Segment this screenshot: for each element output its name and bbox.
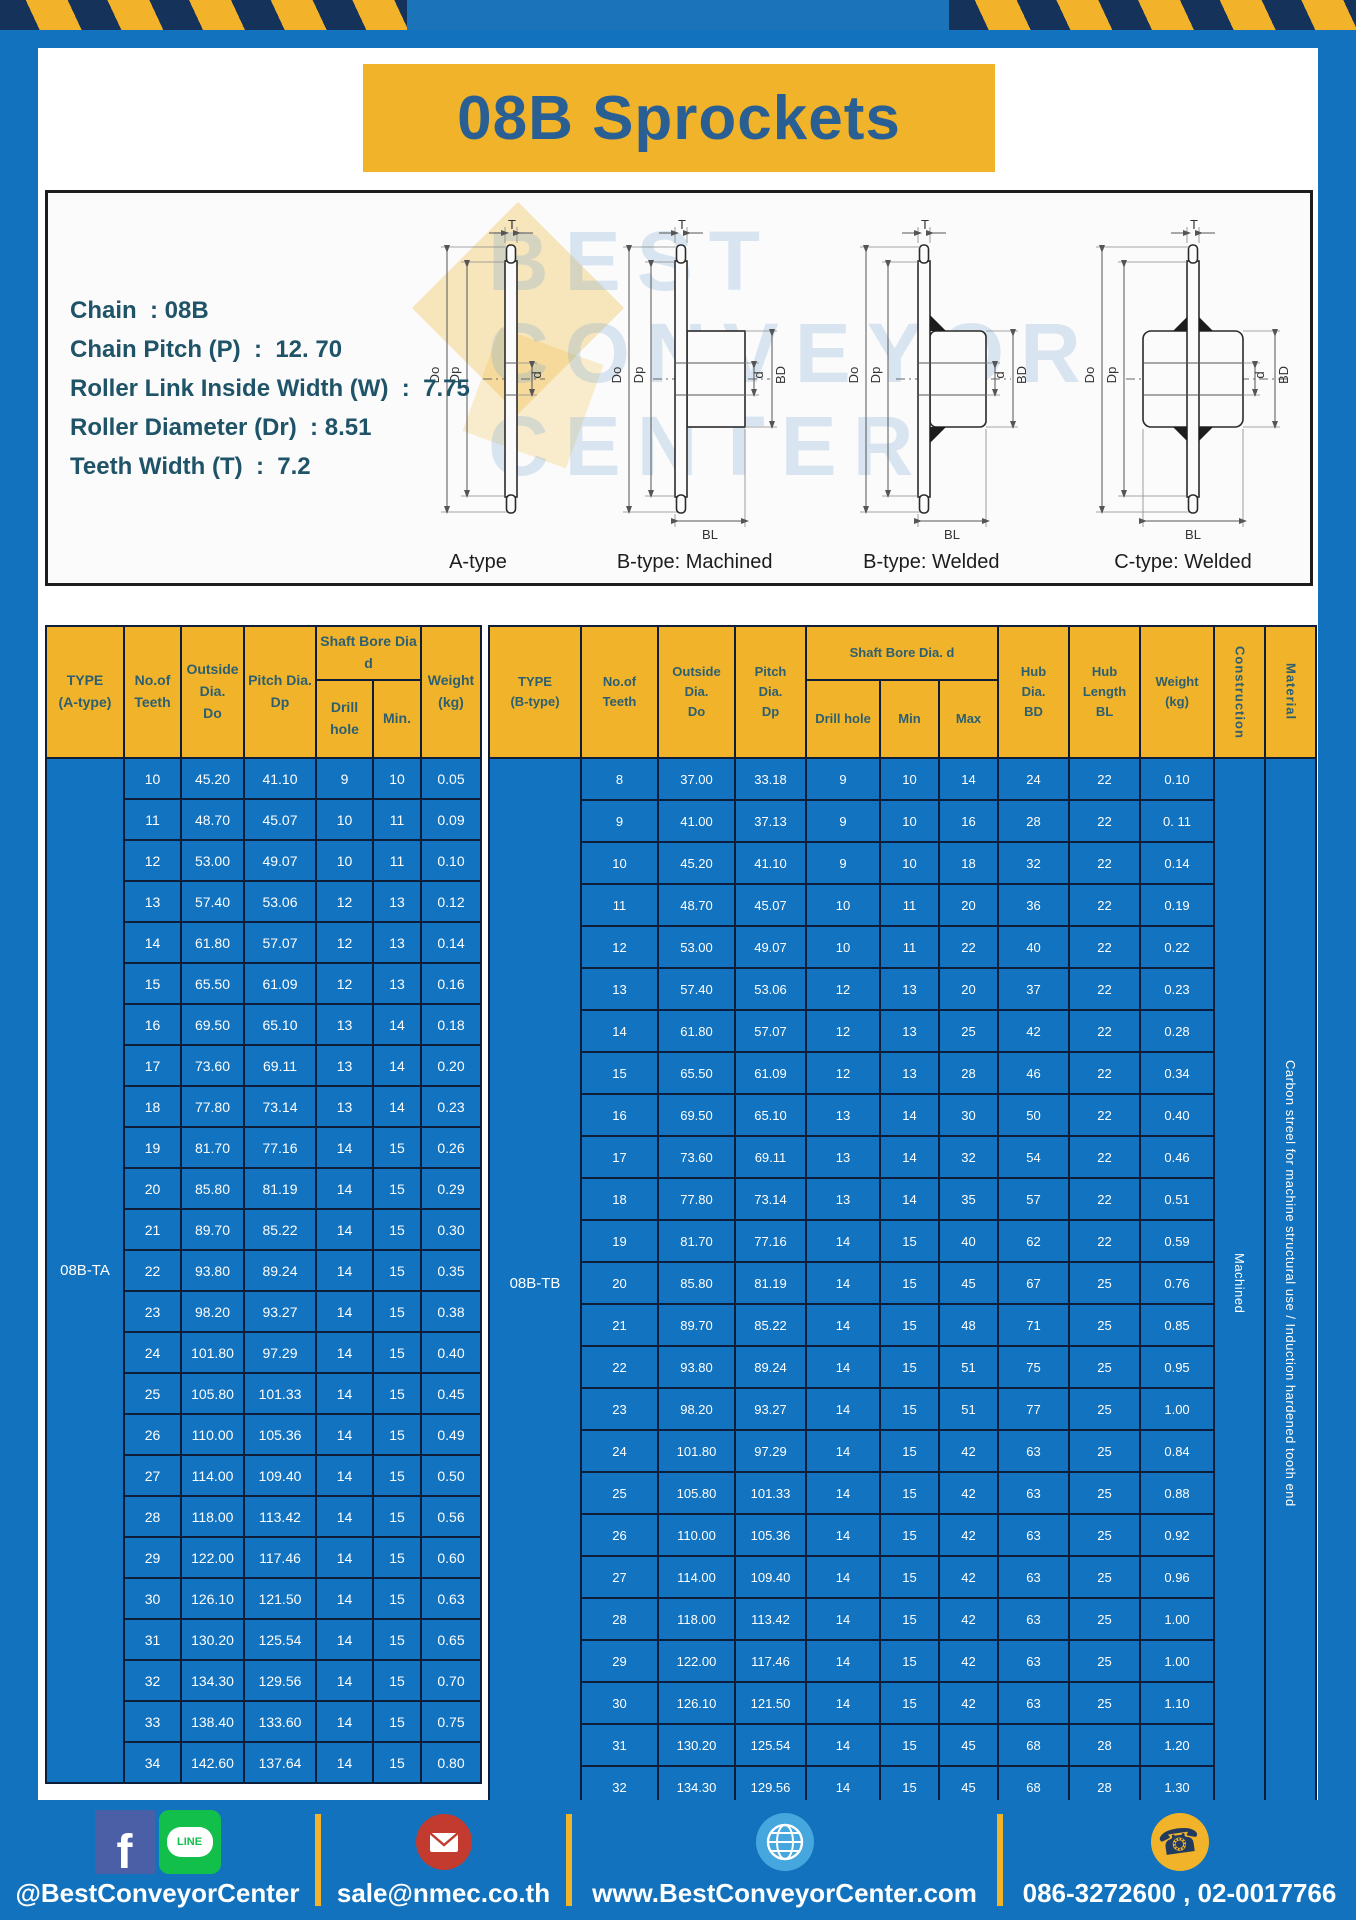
table-cell: 22 bbox=[1069, 1094, 1140, 1136]
table-cell: 14 bbox=[806, 1430, 880, 1472]
table-cell: 45 bbox=[939, 1262, 998, 1304]
dim-bl: BL bbox=[944, 527, 960, 542]
table-cell: 22 bbox=[1069, 842, 1140, 884]
dim-d: d bbox=[529, 371, 544, 378]
table-cell: 57.07 bbox=[735, 1010, 806, 1052]
table-cell: 53.06 bbox=[244, 881, 316, 922]
table-cell: 25 bbox=[1069, 1682, 1140, 1724]
table-cell: 34 bbox=[124, 1742, 181, 1783]
table-cell: 0.92 bbox=[1140, 1514, 1214, 1556]
dim-bl: BL bbox=[702, 527, 718, 542]
table-row: 24101.8097.2914154263250.84 bbox=[489, 1430, 1316, 1472]
table-row: 1253.0049.0710112240220.22 bbox=[489, 926, 1316, 968]
table-row: 2189.7085.2214154871250.85 bbox=[489, 1304, 1316, 1346]
col-header-shaft-bore: Shaft Bore Dia. d bbox=[806, 626, 998, 680]
table-cell: 101.80 bbox=[181, 1332, 244, 1373]
table-cell: 57.07 bbox=[244, 922, 316, 963]
table-cell: 98.20 bbox=[181, 1291, 244, 1332]
table-cell: 101.33 bbox=[244, 1373, 316, 1414]
table-row: 30126.10121.5014154263251.10 bbox=[489, 1682, 1316, 1724]
table-cell: 14 bbox=[806, 1640, 880, 1682]
diagram-label: C-type: Welded bbox=[1114, 551, 1251, 577]
table-row: 31130.20125.5414154568281.20 bbox=[489, 1724, 1316, 1766]
table-cell: 63 bbox=[998, 1556, 1069, 1598]
table-cell: 0.19 bbox=[1140, 884, 1214, 926]
table-cell: 105.36 bbox=[244, 1414, 316, 1455]
table-cell: 29 bbox=[124, 1537, 181, 1578]
table-row: 28118.00113.4214154263251.00 bbox=[489, 1598, 1316, 1640]
table-cell: 51 bbox=[939, 1346, 998, 1388]
spec-teeth-width: Teeth Width (T) : 7.2 bbox=[70, 447, 470, 486]
table-cell: 65.10 bbox=[735, 1094, 806, 1136]
table-cell: 14 bbox=[316, 1373, 373, 1414]
table-cell: 20 bbox=[939, 968, 998, 1010]
dim-bd: BD bbox=[1014, 366, 1029, 384]
table-cell: 0.75 bbox=[421, 1701, 481, 1742]
table-cell: 122.00 bbox=[181, 1537, 244, 1578]
table-cell: 22 bbox=[1069, 758, 1140, 800]
table-cell: 10 bbox=[806, 884, 880, 926]
table-cell: 33 bbox=[124, 1701, 181, 1742]
table-cell: 69.50 bbox=[658, 1094, 735, 1136]
table-cell: 77.16 bbox=[244, 1127, 316, 1168]
table-cell: 61.09 bbox=[244, 963, 316, 1004]
table-cell: 14 bbox=[581, 1010, 658, 1052]
dim-t: T bbox=[1190, 219, 1198, 232]
table-cell: 48.70 bbox=[181, 799, 244, 840]
table-cell: 13 bbox=[316, 1045, 373, 1086]
table-cell: 42 bbox=[939, 1430, 998, 1472]
table-cell: 10 bbox=[880, 800, 939, 842]
col-header-max: Max bbox=[939, 680, 998, 758]
table-row: 1773.6069.1113143254220.46 bbox=[489, 1136, 1316, 1178]
table-cell: 0.26 bbox=[421, 1127, 481, 1168]
table-cell: 93.80 bbox=[181, 1250, 244, 1291]
footer-email-section: sale@nmec.co.th bbox=[321, 1800, 566, 1920]
table-cell: 109.40 bbox=[244, 1455, 316, 1496]
table-cell: 37.00 bbox=[658, 758, 735, 800]
table-cell: 130.20 bbox=[658, 1724, 735, 1766]
table-cell: 31 bbox=[124, 1619, 181, 1660]
table-cell: 0.35 bbox=[421, 1250, 481, 1291]
table-cell: 1.20 bbox=[1140, 1724, 1214, 1766]
title-badge: 08B Sprockets bbox=[363, 64, 995, 172]
table-cell: 14 bbox=[316, 1168, 373, 1209]
col-header-outside-dia: Outside Dia. Do bbox=[658, 626, 735, 758]
table-cell: 22 bbox=[1069, 926, 1140, 968]
table-cell: 15 bbox=[880, 1724, 939, 1766]
table-row: 1461.8057.0712132542220.28 bbox=[489, 1010, 1316, 1052]
table-cell: 14 bbox=[316, 1742, 373, 1783]
hazard-stripes-right bbox=[949, 0, 1356, 30]
table-cell: 24 bbox=[998, 758, 1069, 800]
table-cell: 10 bbox=[316, 799, 373, 840]
table-cell: 117.46 bbox=[244, 1537, 316, 1578]
table-cell: 12 bbox=[806, 1010, 880, 1052]
table-cell: 25 bbox=[1069, 1472, 1140, 1514]
dim-dp: Dp bbox=[631, 367, 646, 384]
table-cell: 53.00 bbox=[658, 926, 735, 968]
table-cell: 25 bbox=[1069, 1556, 1140, 1598]
spec-chain-pitch: Chain Pitch (P) : 12. 70 bbox=[70, 330, 470, 369]
facebook-f-glyph: f bbox=[117, 1831, 133, 1874]
table-cell: 28 bbox=[1069, 1724, 1140, 1766]
table-cell: 11 bbox=[880, 926, 939, 968]
globe-icon-wrap bbox=[755, 1810, 815, 1874]
footer-phone-section: ☎ 086-3272600 , 02-0017766 bbox=[1003, 1800, 1356, 1920]
table-cell: 21 bbox=[124, 1209, 181, 1250]
table-cell: 28 bbox=[998, 800, 1069, 842]
table-cell: 10 bbox=[880, 758, 939, 800]
table-cell: 20 bbox=[124, 1168, 181, 1209]
table-cell: 77.80 bbox=[181, 1086, 244, 1127]
dim-t: T bbox=[921, 219, 929, 232]
website-text: www.BestConveyorCenter.com bbox=[592, 1878, 977, 1909]
b-machined-drawing: T Do Dp d BD BL bbox=[595, 219, 795, 549]
table-cell: 26 bbox=[124, 1414, 181, 1455]
table-cell: 14 bbox=[316, 1701, 373, 1742]
table-cell: 109.40 bbox=[735, 1556, 806, 1598]
table-cell: 1.10 bbox=[1140, 1682, 1214, 1724]
table-cell: 14 bbox=[316, 1578, 373, 1619]
table-cell: 27 bbox=[124, 1455, 181, 1496]
col-header-hub-dia: Hub Dia. BD bbox=[998, 626, 1069, 758]
social-icons: f LINE bbox=[95, 1810, 221, 1874]
table-cell: 12 bbox=[806, 1052, 880, 1094]
table-cell: 16 bbox=[939, 800, 998, 842]
table-cell: 14 bbox=[316, 1250, 373, 1291]
table-cell: 15 bbox=[373, 1742, 421, 1783]
table-cell: 22 bbox=[1069, 1136, 1140, 1178]
table-row: 941.0037.139101628220. 11 bbox=[489, 800, 1316, 842]
col-header-weight: Weight (kg) bbox=[421, 626, 481, 758]
table-cell: 9 bbox=[581, 800, 658, 842]
table-cell: 15 bbox=[373, 1127, 421, 1168]
table-cell: 121.50 bbox=[244, 1578, 316, 1619]
table-cell: 25 bbox=[1069, 1346, 1140, 1388]
diagram-label: B-type: Welded bbox=[863, 551, 999, 577]
table-cell: 85.22 bbox=[244, 1209, 316, 1250]
table-cell: 15 bbox=[373, 1455, 421, 1496]
table-cell: 9 bbox=[806, 758, 880, 800]
table-cell: 15 bbox=[373, 1414, 421, 1455]
table-cell: 0.96 bbox=[1140, 1556, 1214, 1598]
type-label-cell: 08B-TB bbox=[489, 758, 581, 1808]
table-cell: 125.54 bbox=[244, 1619, 316, 1660]
table-cell: 31 bbox=[581, 1724, 658, 1766]
table-cell: 0.20 bbox=[421, 1045, 481, 1086]
table-cell: 0.40 bbox=[1140, 1094, 1214, 1136]
table-cell: 0.30 bbox=[421, 1209, 481, 1250]
table-cell: 35 bbox=[939, 1178, 998, 1220]
table-cell: 42 bbox=[939, 1472, 998, 1514]
table-cell: 42 bbox=[998, 1010, 1069, 1052]
table-cell: 105.36 bbox=[735, 1514, 806, 1556]
table-cell: 11 bbox=[373, 840, 421, 881]
table-cell: 0.76 bbox=[1140, 1262, 1214, 1304]
table-cell: 24 bbox=[124, 1332, 181, 1373]
table-b-type: TYPE (B-type) No.of Teeth Outside Dia. D… bbox=[488, 625, 1317, 1809]
table-cell: 22 bbox=[581, 1346, 658, 1388]
table-cell: 81.70 bbox=[658, 1220, 735, 1262]
table-cell: 142.60 bbox=[181, 1742, 244, 1783]
table-cell: 17 bbox=[581, 1136, 658, 1178]
table-cell: 53.06 bbox=[735, 968, 806, 1010]
table-row: 2398.2093.2714155177251.00 bbox=[489, 1388, 1316, 1430]
table-cell: 26 bbox=[581, 1514, 658, 1556]
email-text: sale@nmec.co.th bbox=[337, 1878, 550, 1909]
table-cell: 73.14 bbox=[735, 1178, 806, 1220]
table-cell: 41.00 bbox=[658, 800, 735, 842]
table-cell: 0.29 bbox=[421, 1168, 481, 1209]
table-cell: 14 bbox=[806, 1472, 880, 1514]
table-cell: 13 bbox=[880, 1010, 939, 1052]
table-cell: 117.46 bbox=[735, 1640, 806, 1682]
table-cell: 14 bbox=[806, 1556, 880, 1598]
table-cell: 0.49 bbox=[421, 1414, 481, 1455]
table-row: 08B-TA1045.2041.109100.05 bbox=[46, 758, 481, 799]
diagram-label: B-type: Machined bbox=[617, 551, 773, 577]
footer: f LINE @BestConveyorCenter sale@nmec.co.… bbox=[0, 1800, 1356, 1920]
table-cell: 0.12 bbox=[421, 881, 481, 922]
table-cell: 15 bbox=[124, 963, 181, 1004]
table-cell: 0. 11 bbox=[1140, 800, 1214, 842]
table-cell: 63 bbox=[998, 1514, 1069, 1556]
table-cell: 23 bbox=[124, 1291, 181, 1332]
table-cell: 28 bbox=[939, 1052, 998, 1094]
table-cell: 114.00 bbox=[181, 1455, 244, 1496]
table-cell: 129.56 bbox=[244, 1660, 316, 1701]
table-cell: 15 bbox=[373, 1373, 421, 1414]
table-cell: 10 bbox=[880, 842, 939, 884]
table-cell: 71 bbox=[998, 1304, 1069, 1346]
table-cell: 25 bbox=[1069, 1598, 1140, 1640]
globe-icon bbox=[755, 1812, 815, 1872]
table-cell: 37.13 bbox=[735, 800, 806, 842]
table-cell: 25 bbox=[1069, 1640, 1140, 1682]
table-cell: 0.70 bbox=[421, 1660, 481, 1701]
table-cell: 13 bbox=[316, 1086, 373, 1127]
dim-t: T bbox=[508, 219, 516, 232]
table-cell: 54 bbox=[998, 1136, 1069, 1178]
page-title: 08B Sprockets bbox=[457, 83, 901, 154]
table-cell: 12 bbox=[316, 881, 373, 922]
spec-block: Chain : 08B Chain Pitch (P) : 12. 70 Rol… bbox=[70, 291, 470, 486]
table-cell: 0.38 bbox=[421, 1291, 481, 1332]
table-cell: 63 bbox=[998, 1682, 1069, 1724]
table-cell: 14 bbox=[806, 1724, 880, 1766]
facebook-icon: f bbox=[95, 1810, 155, 1874]
spec-chain: Chain : 08B bbox=[70, 291, 470, 330]
table-cell: 18 bbox=[124, 1086, 181, 1127]
table-cell: 17 bbox=[124, 1045, 181, 1086]
table-cell: 63 bbox=[998, 1430, 1069, 1472]
table-cell: 0.80 bbox=[421, 1742, 481, 1783]
table-cell: 48 bbox=[939, 1304, 998, 1346]
table-cell: 30 bbox=[581, 1682, 658, 1724]
c-welded-drawing: T Do Dp d BD BL bbox=[1068, 219, 1298, 549]
mail-icon bbox=[415, 1813, 473, 1871]
col-header-min: Min. bbox=[373, 680, 421, 758]
table-cell: 0.05 bbox=[421, 758, 481, 799]
table-cell: 23 bbox=[581, 1388, 658, 1430]
table-cell: 19 bbox=[124, 1127, 181, 1168]
table-cell: 89.70 bbox=[181, 1209, 244, 1250]
table-cell: 14 bbox=[880, 1136, 939, 1178]
col-header-shaft-bore: Shaft Bore Dia d bbox=[316, 626, 421, 680]
top-bar-middle bbox=[407, 0, 949, 30]
table-cell: 41.10 bbox=[735, 842, 806, 884]
table-cell: 19 bbox=[581, 1220, 658, 1262]
table-cell: 32 bbox=[939, 1136, 998, 1178]
table-cell: 12 bbox=[124, 840, 181, 881]
table-cell: 15 bbox=[880, 1346, 939, 1388]
dim-d: d bbox=[751, 371, 766, 378]
table-cell: 20 bbox=[939, 884, 998, 926]
dim-bd: BD bbox=[773, 366, 788, 384]
table-cell: 14 bbox=[373, 1004, 421, 1045]
col-header-outside-dia: Outside Dia. Do bbox=[181, 626, 244, 758]
col-header-min: Min bbox=[880, 680, 939, 758]
table-cell: 15 bbox=[880, 1640, 939, 1682]
table-cell: 25 bbox=[939, 1010, 998, 1052]
table-cell: 25 bbox=[1069, 1430, 1140, 1472]
table-cell: 14 bbox=[806, 1220, 880, 1262]
table-cell: 30 bbox=[939, 1094, 998, 1136]
table-row: 1669.5065.1013143050220.40 bbox=[489, 1094, 1316, 1136]
content-card: 08B Sprockets BEST CONVEYOR CENTER Chain… bbox=[38, 48, 1318, 1800]
table-cell: 0.84 bbox=[1140, 1430, 1214, 1472]
diagram-b-welded: T Do Dp d BD BL B-type: Welded bbox=[826, 219, 1036, 577]
table-cell: 0.18 bbox=[421, 1004, 481, 1045]
dim-t: T bbox=[678, 219, 686, 232]
table-cell: 18 bbox=[581, 1178, 658, 1220]
table-cell: 133.60 bbox=[244, 1701, 316, 1742]
col-header-material: Material bbox=[1265, 626, 1316, 758]
table-cell: 15 bbox=[880, 1556, 939, 1598]
table-cell: 24 bbox=[581, 1430, 658, 1472]
table-cell: 97.29 bbox=[244, 1332, 316, 1373]
table-cell: 81.19 bbox=[244, 1168, 316, 1209]
table-cell: 126.10 bbox=[181, 1578, 244, 1619]
table-cell: 1.00 bbox=[1140, 1640, 1214, 1682]
table-cell: 0.56 bbox=[421, 1496, 481, 1537]
table-cell: 9 bbox=[806, 800, 880, 842]
table-cell: 14 bbox=[806, 1682, 880, 1724]
table-cell: 89.24 bbox=[244, 1250, 316, 1291]
table-cell: 75 bbox=[998, 1346, 1069, 1388]
col-header-teeth: No.of Teeth bbox=[124, 626, 181, 758]
table-cell: 15 bbox=[373, 1537, 421, 1578]
table-cell: 21 bbox=[581, 1304, 658, 1346]
b-welded-drawing: T Do Dp d BD BL bbox=[826, 219, 1036, 549]
table-cell: 32 bbox=[998, 842, 1069, 884]
table-cell: 15 bbox=[373, 1701, 421, 1742]
table-cell: 33.18 bbox=[735, 758, 806, 800]
line-label: LINE bbox=[177, 1836, 202, 1848]
table-cell: 15 bbox=[373, 1332, 421, 1373]
table-cell: 73.60 bbox=[181, 1045, 244, 1086]
table-cell: 14 bbox=[373, 1086, 421, 1127]
table-cell: 14 bbox=[316, 1127, 373, 1168]
table-cell: 15 bbox=[880, 1262, 939, 1304]
table-cell: 14 bbox=[806, 1514, 880, 1556]
table-cell: 15 bbox=[373, 1619, 421, 1660]
table-cell: 57.40 bbox=[181, 881, 244, 922]
social-handle: @BestConveyorCenter bbox=[16, 1878, 300, 1909]
footer-social-section: f LINE @BestConveyorCenter bbox=[0, 1800, 315, 1920]
table-cell: 14 bbox=[316, 1619, 373, 1660]
table-cell: 97.29 bbox=[735, 1430, 806, 1472]
table-cell: 10 bbox=[316, 840, 373, 881]
table-cell: 1.00 bbox=[1140, 1388, 1214, 1430]
table-cell: 85.80 bbox=[181, 1168, 244, 1209]
email-icon-wrap bbox=[415, 1810, 473, 1874]
dim-d: d bbox=[1252, 371, 1267, 378]
table-cell: 25 bbox=[581, 1472, 658, 1514]
table-cell: 10 bbox=[373, 758, 421, 799]
table-cell: 15 bbox=[373, 1168, 421, 1209]
table-cell: 15 bbox=[373, 1496, 421, 1537]
table-row: 1565.5061.0912132846220.34 bbox=[489, 1052, 1316, 1094]
table-cell: 40 bbox=[939, 1220, 998, 1262]
type-label-cell: 08B-TA bbox=[46, 758, 124, 1783]
table-cell: 62 bbox=[998, 1220, 1069, 1262]
table-cell: 0.14 bbox=[421, 922, 481, 963]
table-cell: 61.09 bbox=[735, 1052, 806, 1094]
table-cell: 14 bbox=[806, 1262, 880, 1304]
table-cell: 13 bbox=[581, 968, 658, 1010]
table-cell: 22 bbox=[1069, 1010, 1140, 1052]
table-cell: 126.10 bbox=[658, 1682, 735, 1724]
table-cell: 93.80 bbox=[658, 1346, 735, 1388]
table-cell: 42 bbox=[939, 1598, 998, 1640]
table-cell: 15 bbox=[581, 1052, 658, 1094]
table-cell: 29 bbox=[581, 1640, 658, 1682]
table-cell: 20 bbox=[581, 1262, 658, 1304]
table-cell: 14 bbox=[316, 1537, 373, 1578]
table-cell: 0.51 bbox=[1140, 1178, 1214, 1220]
table-cell: 69.11 bbox=[244, 1045, 316, 1086]
table-row: 2085.8081.1914154567250.76 bbox=[489, 1262, 1316, 1304]
table-cell: 98.20 bbox=[658, 1388, 735, 1430]
table-cell: 42 bbox=[939, 1514, 998, 1556]
table-cell: 11 bbox=[373, 799, 421, 840]
table-cell: 12 bbox=[806, 968, 880, 1010]
construction-value: Machined bbox=[1214, 758, 1265, 1808]
table-cell: 45 bbox=[939, 1724, 998, 1766]
table-cell: 9 bbox=[316, 758, 373, 799]
table-cell: 0.23 bbox=[421, 1086, 481, 1127]
table-cell: 65.10 bbox=[244, 1004, 316, 1045]
table-cell: 22 bbox=[1069, 1220, 1140, 1262]
table-cell: 73.60 bbox=[658, 1136, 735, 1178]
table-cell: 89.24 bbox=[735, 1346, 806, 1388]
col-header-type: TYPE (A-type) bbox=[46, 626, 124, 758]
table-cell: 32 bbox=[124, 1660, 181, 1701]
table-cell: 40 bbox=[998, 926, 1069, 968]
table-cell: 25 bbox=[1069, 1304, 1140, 1346]
table-cell: 121.50 bbox=[735, 1682, 806, 1724]
table-cell: 13 bbox=[806, 1178, 880, 1220]
table-cell: 57.40 bbox=[658, 968, 735, 1010]
table-cell: 138.40 bbox=[181, 1701, 244, 1742]
table-cell: 14 bbox=[316, 1496, 373, 1537]
table-cell: 45.20 bbox=[181, 758, 244, 799]
table-cell: 9 bbox=[806, 842, 880, 884]
col-header-pitch-dia: Pitch Dia. Dp bbox=[244, 626, 316, 758]
diagram-panel: BEST CONVEYOR CENTER Chain : 08B Chain P… bbox=[45, 190, 1313, 586]
